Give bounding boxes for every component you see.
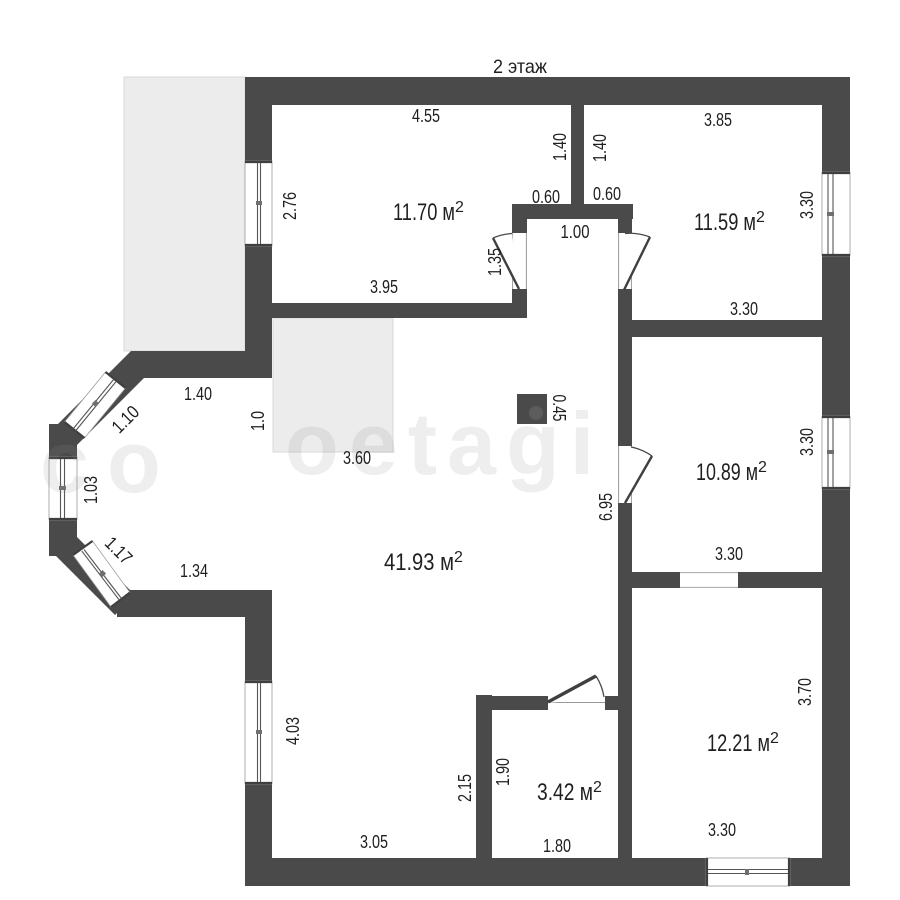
svg-text:1.90: 1.90 — [492, 758, 513, 786]
svg-text:3.60: 3.60 — [343, 447, 371, 468]
svg-text:11.70 м2: 11.70 м2 — [393, 199, 464, 226]
svg-text:0.60: 0.60 — [593, 183, 621, 204]
svg-text:1.03: 1.03 — [80, 476, 101, 504]
svg-text:1.80: 1.80 — [543, 835, 571, 856]
svg-text:4.55: 4.55 — [412, 105, 440, 126]
svg-text:12.21 м2: 12.21 м2 — [707, 730, 779, 757]
svg-text:0.45: 0.45 — [549, 395, 570, 422]
svg-text:3.30: 3.30 — [796, 428, 817, 456]
svg-text:1.40: 1.40 — [184, 383, 212, 404]
svg-text:2 этаж: 2 этаж — [493, 56, 547, 78]
svg-text:3.05: 3.05 — [360, 831, 388, 852]
svg-text:1.00: 1.00 — [561, 221, 590, 242]
svg-text:2.76: 2.76 — [279, 192, 300, 220]
svg-text:11.59 м2: 11.59 м2 — [694, 209, 765, 236]
svg-text:3.30: 3.30 — [715, 543, 743, 564]
svg-text:3.70: 3.70 — [794, 678, 815, 706]
svg-text:3.30: 3.30 — [708, 819, 736, 840]
svg-text:1.40: 1.40 — [549, 133, 570, 161]
svg-text:3.85: 3.85 — [704, 109, 732, 130]
svg-text:1.35: 1.35 — [484, 248, 505, 276]
svg-text:3.30: 3.30 — [796, 191, 817, 219]
svg-text:3.95: 3.95 — [370, 276, 398, 297]
svg-text:6.95: 6.95 — [595, 493, 616, 521]
svg-text:1.0: 1.0 — [247, 411, 268, 431]
svg-text:3.30: 3.30 — [730, 298, 758, 319]
svg-text:10.89 м2: 10.89 м2 — [696, 459, 767, 486]
svg-text:3.42 м2: 3.42 м2 — [537, 779, 602, 806]
svg-text:4.03: 4.03 — [282, 717, 303, 745]
svg-text:1.40: 1.40 — [589, 134, 610, 162]
svg-text:со: со — [40, 412, 179, 511]
svg-text:0.60: 0.60 — [532, 186, 560, 207]
svg-text:1.34: 1.34 — [180, 560, 208, 581]
svg-text:41.93 м2: 41.93 м2 — [384, 549, 463, 576]
svg-text:2.15: 2.15 — [454, 774, 475, 802]
